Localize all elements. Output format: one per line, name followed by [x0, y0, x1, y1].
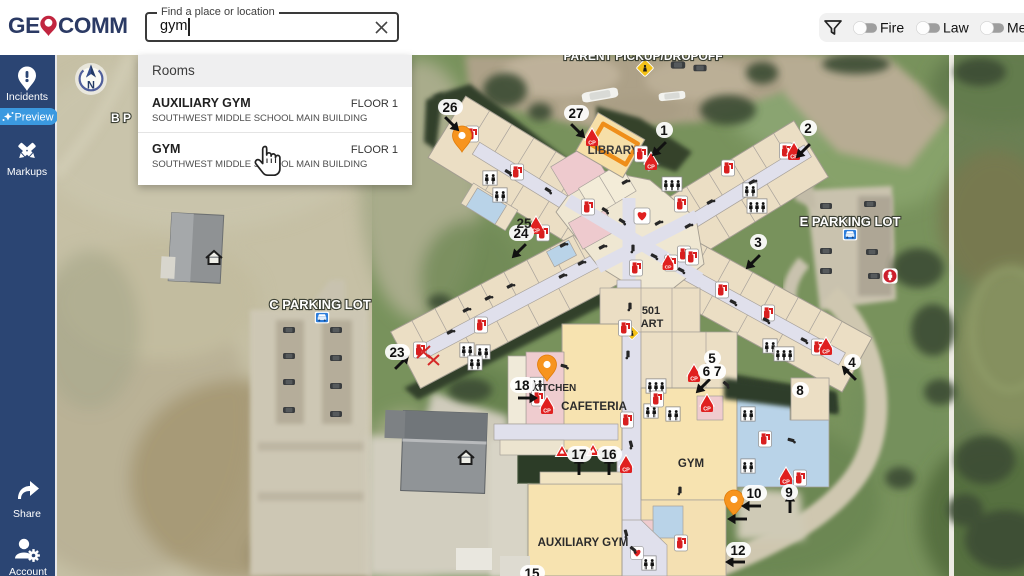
- svg-text:N: N: [87, 80, 95, 92]
- svg-text:17: 17: [571, 447, 586, 462]
- svg-text:Incidents: Incidents: [6, 91, 48, 103]
- svg-text:6 7: 6 7: [703, 364, 722, 379]
- svg-text:ART: ART: [641, 318, 664, 330]
- svg-text:501: 501: [642, 305, 660, 317]
- svg-text:B P: B P: [111, 111, 131, 125]
- svg-text:GE: GE: [8, 13, 40, 38]
- svg-text:Markups: Markups: [7, 166, 47, 178]
- svg-text:GYM: GYM: [678, 458, 704, 470]
- svg-text:COMM: COMM: [58, 13, 128, 38]
- svg-text:9: 9: [785, 485, 793, 500]
- svg-text:C PARKING LOT: C PARKING LOT: [269, 297, 371, 312]
- svg-text:Account: Account: [9, 566, 47, 576]
- svg-text:8: 8: [796, 383, 804, 398]
- svg-text:25: 25: [516, 216, 532, 231]
- svg-text:15: 15: [524, 566, 540, 576]
- svg-text:23: 23: [389, 345, 405, 360]
- svg-text:PARENT PICKUP/DROPOFF: PARENT PICKUP/DROPOFF: [563, 55, 722, 63]
- svg-text:1: 1: [660, 123, 668, 138]
- svg-text:AUXILIARY GYM: AUXILIARY GYM: [538, 537, 629, 549]
- svg-text:Preview: Preview: [14, 112, 53, 124]
- svg-text:2: 2: [804, 121, 812, 136]
- svg-text:18: 18: [514, 378, 530, 393]
- svg-text:CAFETERIA: CAFETERIA: [561, 401, 627, 413]
- svg-text:3: 3: [754, 235, 762, 250]
- svg-text:Me: Me: [1007, 20, 1024, 36]
- svg-text:26: 26: [442, 100, 458, 115]
- svg-text:E PARKING LOT: E PARKING LOT: [800, 214, 901, 229]
- svg-text:10: 10: [746, 486, 761, 501]
- svg-text:LIBRARY: LIBRARY: [588, 145, 639, 157]
- svg-text:16: 16: [601, 447, 617, 462]
- svg-text:KITCHEN: KITCHEN: [532, 383, 576, 394]
- svg-text:27: 27: [568, 106, 583, 121]
- svg-text:Share: Share: [13, 508, 41, 520]
- svg-text:Law: Law: [943, 20, 970, 36]
- svg-text:4: 4: [848, 355, 856, 370]
- svg-text:12: 12: [730, 543, 745, 558]
- svg-text:Fire: Fire: [880, 20, 904, 36]
